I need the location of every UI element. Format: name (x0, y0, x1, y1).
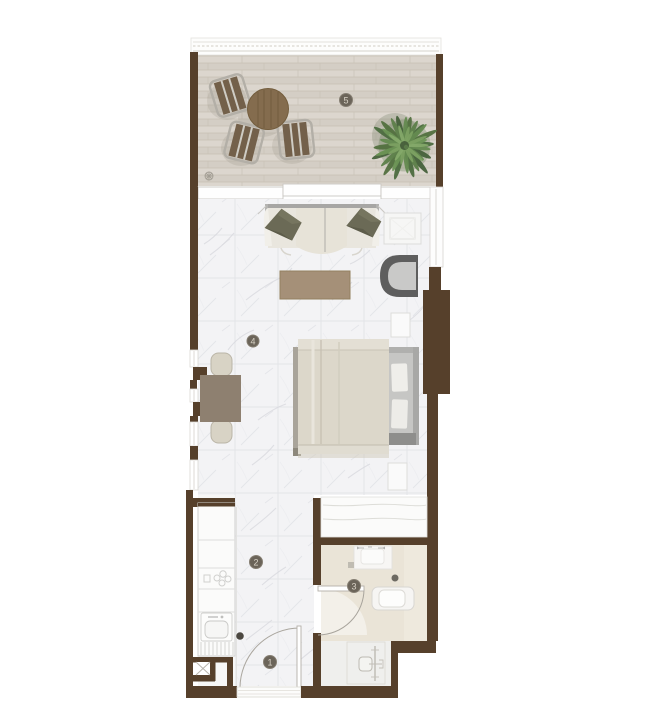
svg-text:2: 2 (253, 558, 258, 568)
svg-text:3: 3 (351, 582, 356, 592)
svg-text:5: 5 (343, 96, 348, 106)
svg-text:4: 4 (250, 337, 255, 347)
svg-text:1: 1 (267, 658, 272, 668)
